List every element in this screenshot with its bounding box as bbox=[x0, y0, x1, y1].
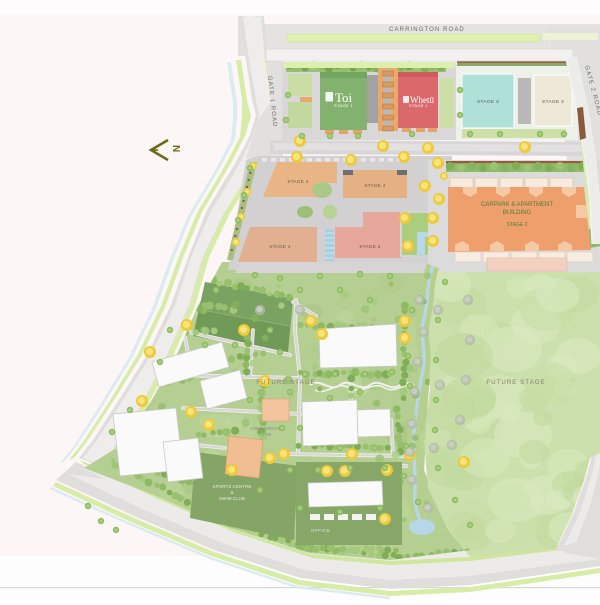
svg-text:STAGE 1: STAGE 1 bbox=[409, 103, 428, 108]
svg-text:STAGE 4: STAGE 4 bbox=[359, 244, 380, 249]
svg-text:OFFICE: OFFICE bbox=[311, 528, 331, 533]
svg-text:STAGE 3: STAGE 3 bbox=[477, 99, 499, 105]
svg-text:STAGE 3: STAGE 3 bbox=[542, 99, 564, 105]
svg-text:N: N bbox=[170, 145, 181, 152]
svg-text:SWIM CLUB: SWIM CLUB bbox=[219, 496, 245, 501]
svg-text:FUTURE STAGE: FUTURE STAGE bbox=[256, 379, 315, 386]
svg-text:STAGE 1: STAGE 1 bbox=[334, 103, 353, 108]
svg-text:FUTURE STAGE: FUTURE STAGE bbox=[486, 379, 545, 386]
svg-text:STAGE 4: STAGE 4 bbox=[364, 183, 385, 188]
svg-text:STAGE 4: STAGE 4 bbox=[269, 244, 290, 249]
svg-text:COMMERCIAL: COMMERCIAL bbox=[250, 426, 282, 431]
svg-text:CARRINGTON ROAD: CARRINGTON ROAD bbox=[389, 27, 465, 33]
svg-text:&: & bbox=[230, 490, 233, 495]
svg-text:CARPARK & APARTMENT: CARPARK & APARTMENT bbox=[481, 202, 553, 208]
svg-text:BUILDING: BUILDING bbox=[503, 210, 532, 216]
svg-text:GYM: GYM bbox=[261, 432, 272, 437]
svg-text:SPORTS CENTRE: SPORTS CENTRE bbox=[213, 484, 252, 489]
svg-text:STAGE 4: STAGE 4 bbox=[287, 179, 308, 184]
svg-text:STAGE 2: STAGE 2 bbox=[507, 222, 528, 228]
